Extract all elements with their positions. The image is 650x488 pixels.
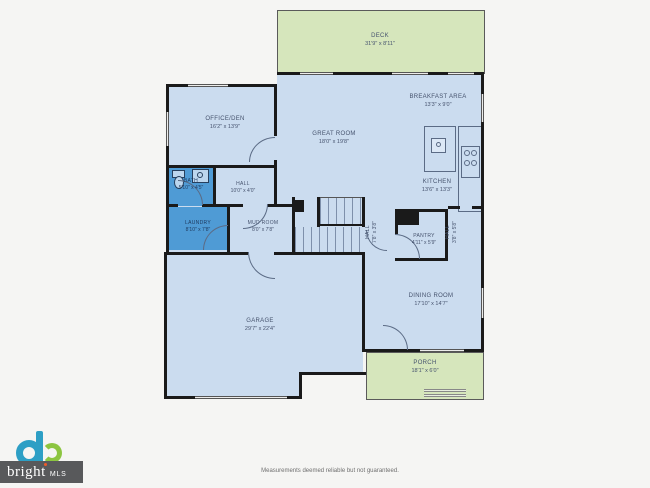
wall [419, 209, 448, 212]
room-label-hall-right: HALL 3'8" x 5'8" [446, 203, 466, 261]
room-label-pantry: PANTRY 4'11" x 5'9" [402, 234, 446, 247]
room-label-deck: DECK 31'9" x 8'11" [330, 33, 430, 47]
window [448, 72, 474, 75]
garage-notch [302, 375, 366, 398]
stairs-divider-wall [320, 224, 365, 226]
faucet-dot [436, 142, 441, 147]
room-label-garage: GARAGE 29'7" x 22'4" [214, 318, 306, 332]
disclaimer-text: Measurements deemed reliable but not gua… [230, 468, 430, 474]
room-dims: 3'8" x 5'8" [453, 221, 459, 243]
room-label-laundry: LAUNDRY 8'10" x 7'8" [172, 221, 224, 234]
room-name: LAUNDRY [185, 221, 211, 227]
wall [202, 204, 243, 207]
room-label-great-room: GREAT ROOM 18'0" x 19'8" [288, 131, 380, 145]
room-dims: 8'10" x 7'8" [186, 228, 211, 234]
room-dims: 18'1" x 6'0" [411, 368, 438, 374]
stairs-right-wall [362, 197, 365, 227]
wall [472, 206, 481, 209]
room-name: BATH [184, 179, 198, 185]
wall [274, 84, 277, 136]
stairs-upper-run [320, 197, 365, 225]
room-name: GREAT ROOM [312, 131, 355, 138]
room-label-breakfast: BREAKFAST AREA 13'3" x 9'0" [392, 94, 484, 108]
logo-suffix-text: MLS [50, 471, 67, 478]
room-dims: 13'6" x 13'3" [422, 187, 452, 193]
room-dims: 4'11" x 5'9" [412, 241, 436, 247]
floor-plan: DECK 31'9" x 8'11" BREAKFAST AREA 13'3" … [0, 0, 650, 488]
room-dims: 5'10" x 4'5" [179, 186, 204, 192]
logo-brand-word: bright [7, 464, 46, 480]
wall [274, 252, 365, 255]
wall [213, 168, 216, 207]
room-label-kitchen: KITCHEN 13'6" x 13'3" [406, 179, 468, 193]
room-name: KITCHEN [423, 179, 451, 186]
room-name: HALL [366, 225, 372, 239]
room-name: HALL [446, 225, 452, 239]
logo-accent-dot [44, 463, 47, 466]
wall [299, 372, 366, 375]
burner-dot [471, 160, 477, 166]
wall [164, 252, 167, 399]
room-dims: 18'0" x 19'8" [319, 139, 349, 145]
room-name: PORCH [413, 360, 436, 367]
burner-dot [464, 150, 470, 156]
room-label-office: OFFICE/DEN 16'2" x 13'9" [182, 116, 268, 130]
garage-door [195, 396, 287, 399]
room-name: PANTRY [413, 234, 435, 240]
room-label-hall: HALL 10'0" x 4'0" [217, 182, 269, 195]
room-dims: 13'3" x 9'0" [424, 102, 451, 108]
window [166, 112, 169, 146]
wall [362, 252, 365, 352]
room-dims: 7'8" x 3'8" [373, 221, 379, 243]
room-dims: 29'7" x 22'4" [245, 326, 275, 332]
window [188, 84, 228, 87]
wall [164, 252, 248, 255]
room-label-porch: PORCH 18'1" x 6'0" [394, 360, 456, 374]
room-dims: 31'9" x 8'11" [365, 41, 395, 47]
wall-block [292, 200, 304, 212]
window [420, 349, 464, 352]
room-dims: 8'0" x 7'8" [252, 228, 274, 234]
wall [166, 84, 169, 252]
room-name: OFFICE/DEN [205, 116, 244, 123]
room-label-bath: BATH 5'10" x 4'5" [170, 179, 212, 192]
room-name: BREAKFAST AREA [409, 94, 466, 101]
burner-dot [464, 160, 470, 166]
room-name: MUD ROOM [248, 221, 279, 227]
logo-brand-text: bright [7, 464, 46, 481]
room-label-mudroom: MUD ROOM 8'0" x 7'8" [236, 221, 290, 234]
room-dims: 16'2" x 13'9" [210, 124, 240, 130]
room-dims: 17'10" x 14'7" [414, 301, 447, 307]
room-label-dining: DINING ROOM 17'10" x 14'7" [386, 293, 476, 307]
window [300, 72, 333, 75]
burner-dot [471, 150, 477, 156]
logo-green-swirl [42, 443, 62, 463]
room-name: DECK [371, 33, 389, 40]
wall [166, 165, 277, 168]
room-name: HALL [236, 182, 250, 188]
wall [299, 372, 302, 399]
wall [169, 204, 178, 207]
porch-steps [424, 389, 466, 392]
room-name: GARAGE [246, 318, 273, 325]
porch-steps [424, 394, 466, 397]
room-dims: 10'0" x 4'0" [231, 189, 256, 195]
room-label-hall-stairs: HALL 7'8" x 3'8" [366, 202, 386, 262]
stairs-left-wall [317, 197, 320, 227]
wall [395, 225, 398, 234]
deck-slider-door [392, 72, 428, 75]
logo-band: bright MLS [0, 461, 83, 483]
wall-block [395, 209, 419, 225]
window [481, 288, 484, 318]
wall [267, 204, 292, 207]
stairs-lower-run [295, 227, 365, 255]
room-name: DINING ROOM [409, 293, 454, 300]
